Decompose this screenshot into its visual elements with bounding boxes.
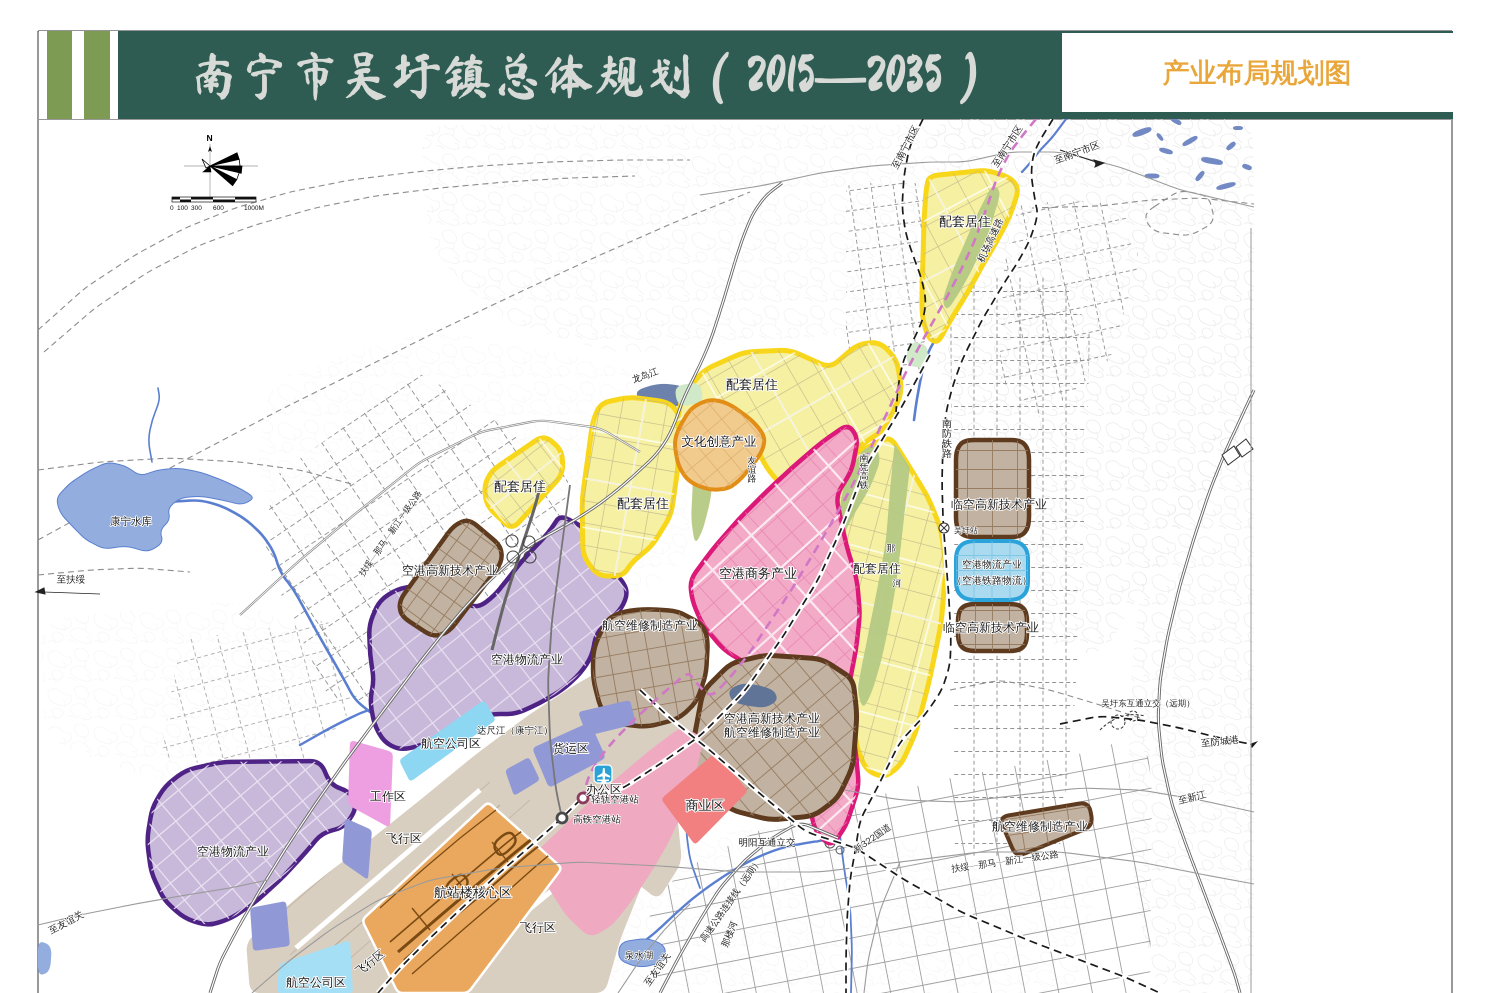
svg-text:0: 0 [170,205,174,212]
svg-text:300: 300 [191,205,202,212]
svg-text:N: N [207,133,213,143]
svg-text:1000M: 1000M [244,205,264,212]
svg-text:100: 100 [177,205,188,212]
svg-text:600: 600 [213,205,224,212]
